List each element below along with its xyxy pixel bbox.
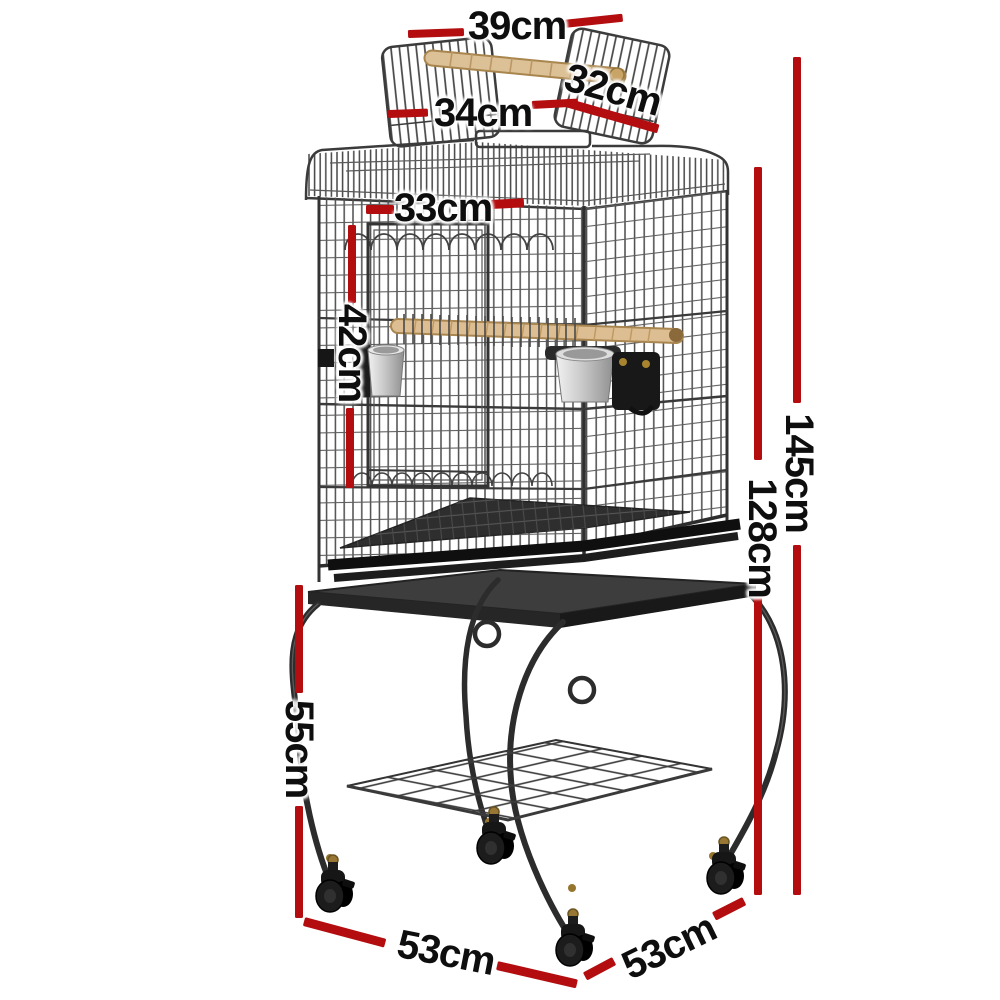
dim-55cm-label: 55cm bbox=[279, 700, 319, 798]
dim-line-33cm-left bbox=[366, 205, 394, 214]
dim-34cm-label: 34cm bbox=[434, 93, 532, 133]
dim-line-145cm-bottom bbox=[793, 545, 801, 895]
dim-128cm-label: 128cm bbox=[742, 478, 782, 598]
dim-line-145cm-top bbox=[793, 57, 801, 403]
mesh-shelf bbox=[347, 740, 712, 820]
dim-145cm-label: 145cm bbox=[779, 413, 819, 533]
dim-39cm-label: 39cm bbox=[468, 6, 566, 46]
dim-line-34cm-left bbox=[388, 109, 428, 118]
dim-line-55cm-top bbox=[295, 585, 303, 693]
dim-line-42cm-top bbox=[348, 225, 356, 303]
dim-42cm-label: 42cm bbox=[332, 304, 372, 402]
caster-front bbox=[556, 909, 595, 966]
cage-top-rim bbox=[306, 131, 728, 209]
dim-line-33cm-right bbox=[491, 198, 524, 209]
dim-line-128cm-top bbox=[754, 167, 762, 460]
dimension-diagram: 39cm 34cm 32cm 33cm 42cm 145cm 128cm 55c… bbox=[0, 0, 1000, 1000]
dim-line-55cm-bottom bbox=[295, 806, 303, 918]
dim-line-42cm-bottom bbox=[346, 408, 354, 488]
dim-line-128cm-bottom bbox=[754, 597, 762, 895]
dim-33cm-label: 33cm bbox=[394, 188, 492, 228]
caster-right bbox=[707, 837, 746, 894]
cage-illustration bbox=[0, 0, 1000, 1000]
